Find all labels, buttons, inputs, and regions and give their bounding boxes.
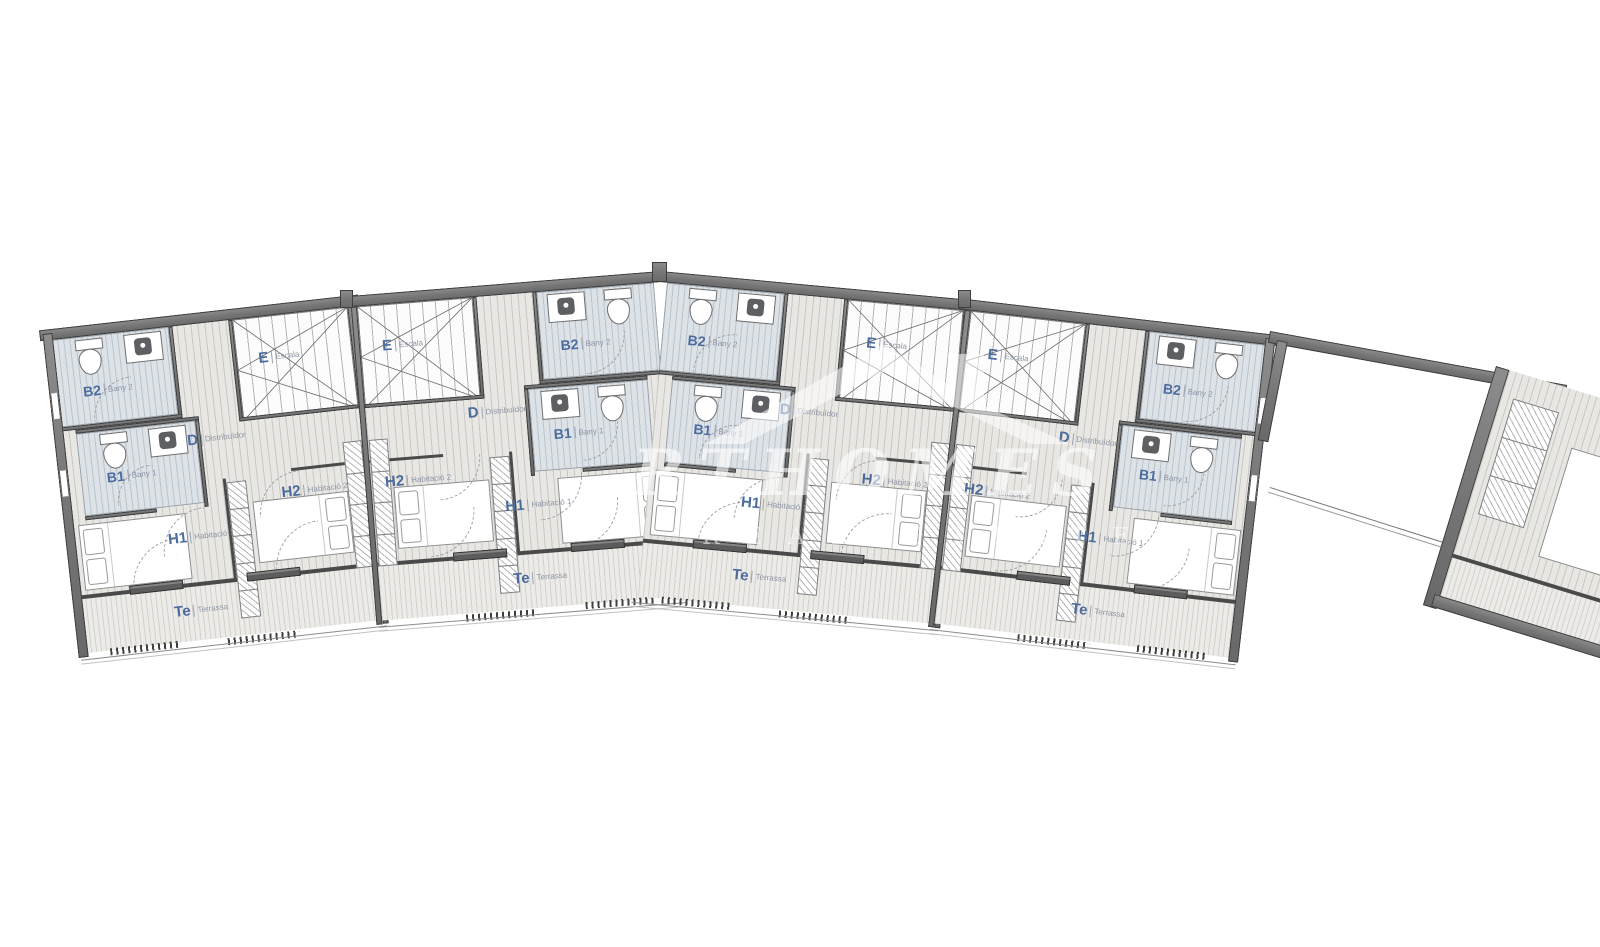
label-divider [1159,470,1161,482]
unit-5-partial [1423,366,1600,669]
label-divider [127,469,129,481]
toilet-fixture [690,385,723,426]
room-code-e: E [865,334,877,352]
floor-plan: B2Bany 2B1Bany 1DDistribuïdorEEscalaH1Ha… [0,0,1600,947]
label-divider [751,570,753,582]
room-name-b2: Bany 2 [107,382,133,394]
room-name-te: Terrassa [755,572,786,584]
toilet-fixture [73,337,107,378]
room-code-b2: B2 [82,382,102,400]
label-divider [1000,350,1002,362]
toilet-bowl [688,298,713,326]
room-code-te: Te [173,602,191,621]
room-name-b1: Bany 1 [131,468,157,480]
label-divider [303,484,305,496]
room-code-b1: B1 [1138,466,1158,484]
room-code-h1: H1 [740,494,761,513]
stair-flight-lines [959,311,1086,426]
unit-1: B2Bany 2B1Bany 1DDistribuïdorEEscalaH1Ha… [42,295,389,658]
stair-flight-lines [357,297,481,408]
room-name-h1: Habitació 1 [531,497,572,509]
staircase [839,300,964,412]
label-divider [527,499,529,511]
room-code-h2: H2 [384,472,404,490]
sink-fixture [736,292,777,324]
room-name-d: Distribuïdor [1076,435,1118,449]
stair-flight-lines [232,307,359,421]
room-name-b1: Bany 1 [718,427,744,438]
duvet-fold-line [993,499,1001,559]
room-code-b1: B1 [553,425,572,442]
room-name-b2: Bany 2 [712,338,738,349]
sink-fixture [1131,429,1172,462]
label-divider [986,485,988,497]
room-code-e: E [258,349,270,367]
pillow [325,496,348,522]
room-name-te: Terrassa [197,602,228,614]
sink-fixture [1156,335,1197,368]
room-label-e: EEscala [865,334,907,355]
toilet-fixture [602,287,635,327]
toilet-bowl [1189,446,1215,474]
room-name-d: Distribuïdor [485,404,526,416]
label-divider [708,336,710,348]
pillow [328,524,351,550]
pillow [398,490,420,516]
room-code-b2: B2 [1162,380,1182,398]
toilet-fixture [98,431,132,472]
room-name-h1: Habitació 1 [1103,534,1144,548]
label-divider [271,351,273,363]
room-code-d: D [1058,429,1071,447]
pillow [657,475,679,503]
pillow [972,500,995,526]
room-code-h1: H1 [167,529,188,548]
room-code-d: D [467,404,479,422]
room-code-h2: H2 [861,471,882,490]
party-wall-cap [652,262,667,282]
room-code-h1: H1 [505,497,525,515]
party-wall-cap [340,290,353,308]
room-label-e: EEscala [381,334,423,354]
pillow [83,527,106,555]
stair-flight-lines [839,300,964,412]
room-name-d: Distribuïdor [797,406,839,419]
label-divider [1183,385,1185,397]
duvet-fold-line [107,523,115,587]
party-wall-cap [958,290,971,308]
duvet-fold-line [891,489,898,549]
label-divider [574,426,576,438]
room-code-e: E [381,337,392,355]
room-name-b1: Bany 1 [1163,472,1189,484]
toilet-fixture [685,288,718,329]
staircase [357,297,481,408]
unit-3: B2Bany 2B1Bany 1DDistribuïdorEEscalaH1Ha… [630,271,971,628]
room-code-e: E [987,346,999,364]
label-divider [1099,532,1101,544]
pillow [898,521,920,547]
label-divider [793,404,795,416]
label-divider [532,572,534,584]
staircase [959,311,1086,426]
toilet-fixture [1210,342,1244,383]
sink-fixture [148,425,189,458]
room-code-h2: H2 [963,480,984,499]
pillow [654,505,676,533]
label-divider [1090,605,1092,617]
room-code-h2: H2 [281,482,302,501]
toilet-fixture [596,384,629,424]
room-name-h1: Habitació 1 [194,528,235,541]
duvet-fold-line [679,473,686,537]
room-name-b2: Bany 2 [585,337,611,348]
label-divider [193,604,195,616]
pillow [1210,562,1233,590]
duvet-fold-line [422,486,428,546]
room-code-te: Te [513,570,531,588]
room-name-te: Terrassa [1094,607,1126,619]
room-name-te: Terrassa [536,570,567,581]
room-name-b2: Bany 2 [1187,387,1213,399]
toilet-bowl [606,298,631,326]
sink-fixture [741,389,782,421]
pillow [400,518,422,544]
pillow [86,557,109,585]
room-code-b1: B1 [693,421,712,439]
room-name-e: Escala [1004,352,1029,364]
sink-fixture [123,331,164,364]
label-divider [190,531,192,543]
pillow [969,528,992,554]
label-divider [481,406,483,418]
room-name-h2: Habitació 2 [307,481,348,494]
pillow [1214,532,1237,560]
label-divider [395,339,397,351]
room-name-e: Escala [275,349,300,361]
room-name-b1: Bany 1 [578,426,604,437]
room-code-d: D [779,401,791,419]
unit-4: B2Bany 2B1Bany 1DDistribuïdorEEscalaH1Ha… [928,299,1276,663]
room-code-h1: H1 [1077,527,1098,546]
label-divider [581,338,583,350]
room-code-te: Te [1070,600,1088,619]
label-divider [883,475,885,487]
toilet-bowl [1214,352,1240,380]
label-divider [714,425,716,437]
toilet-bowl [600,394,625,422]
room-code-te: Te [731,566,749,584]
label-divider [103,383,105,395]
label-divider [407,474,409,486]
room-name-h1: Habitació 1 [767,500,808,513]
pillow [900,493,922,519]
sink-fixture [546,291,586,323]
label-divider [1072,433,1074,445]
room-name-e: Escala [399,338,424,349]
toilet-fixture [1185,436,1219,477]
room-code-b2: B2 [687,332,706,350]
room-name-e: Escala [883,340,908,351]
staircase [232,307,359,421]
room-name-h2: Habitació 2 [411,472,452,484]
label-divider [879,338,881,350]
room-code-b2: B2 [560,336,579,353]
toilet-bowl [693,395,718,423]
room-code-b1: B1 [106,468,126,486]
room-name-d: Distribuïdor [205,430,247,444]
room-name-h2: Habitació 2 [990,487,1031,501]
label-divider [763,498,765,510]
toilet-bowl [77,348,103,376]
room-name-h2: Habitació 2 [887,477,928,490]
toilet-bowl [102,441,128,469]
sink-fixture [540,388,580,420]
label-divider [200,433,202,445]
room-code-d: D [186,431,199,449]
